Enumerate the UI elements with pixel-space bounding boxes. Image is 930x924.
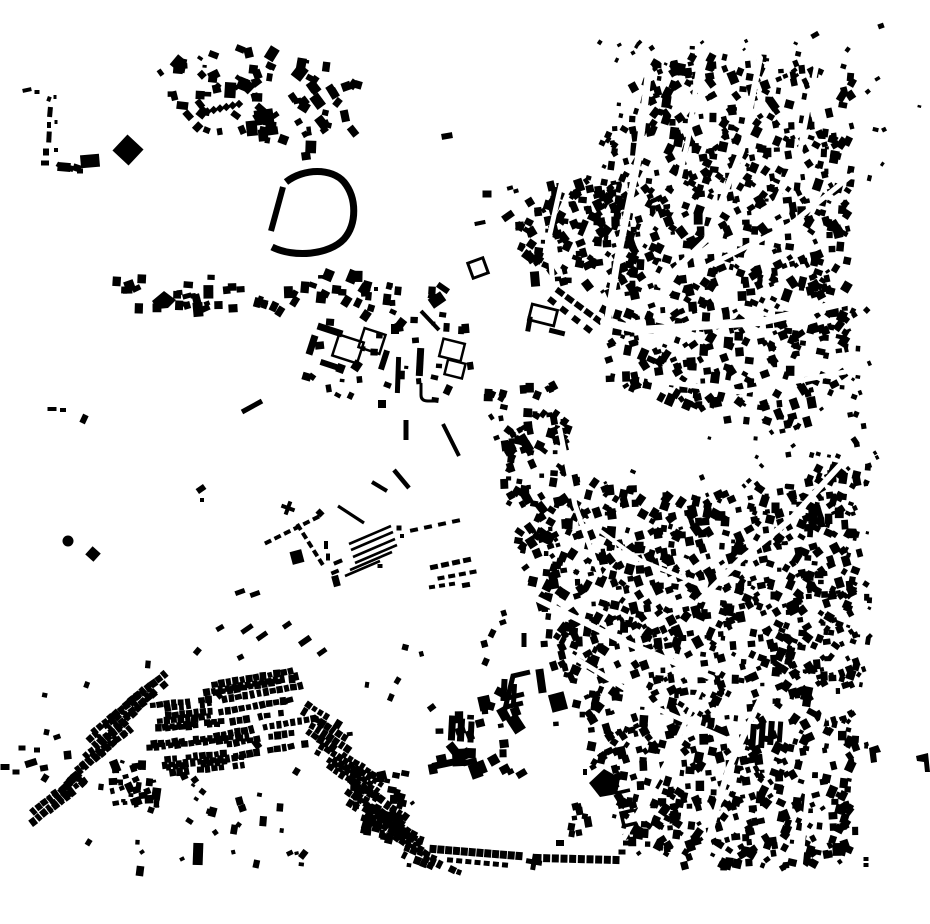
polygon-building: [152, 291, 176, 309]
region-top-center-cluster: [157, 44, 363, 153]
rowhouse-bands: [28, 667, 462, 875]
string-dash-row-b: [437, 569, 477, 580]
region-bl-inner-scatter: [138, 757, 309, 868]
figure-ground-map: [0, 0, 930, 924]
region-midleft-band: [112, 274, 245, 317]
string-bottom-strip-c: [447, 857, 508, 868]
string-bottom-strip-b: [534, 854, 619, 864]
region-bc-small-cluster: [567, 802, 592, 837]
polygon-building: [916, 753, 930, 772]
linear-building: [421, 311, 439, 330]
polygon-building: [869, 745, 881, 763]
landmark-shapes: [1, 23, 930, 871]
string-bottom-strip-a: [429, 845, 523, 861]
linear-building: [394, 470, 409, 488]
region-bl-blob: [109, 759, 162, 808]
linear-building: [338, 506, 364, 523]
region-tr-corner-sparse: [865, 76, 922, 182]
street: [700, 460, 845, 600]
circle-building: [63, 536, 74, 547]
path-building: [272, 172, 354, 254]
string-dash-row-a: [430, 557, 472, 571]
street: [606, 68, 649, 330]
linear-building: [242, 401, 262, 412]
linear-building: [443, 424, 459, 456]
linear-building: [372, 482, 387, 491]
string-dash-row-c: [429, 582, 456, 590]
string-mid-singles-row: [410, 518, 461, 533]
region-tr-fade-top: [597, 39, 851, 67]
region-midband-right: [253, 268, 402, 317]
linear-building: [271, 187, 283, 231]
region-tr-main-fabric: [594, 52, 857, 430]
string-dash-street-a: [264, 515, 320, 546]
map-canvas: [0, 0, 930, 924]
building-regions: [40, 39, 921, 877]
